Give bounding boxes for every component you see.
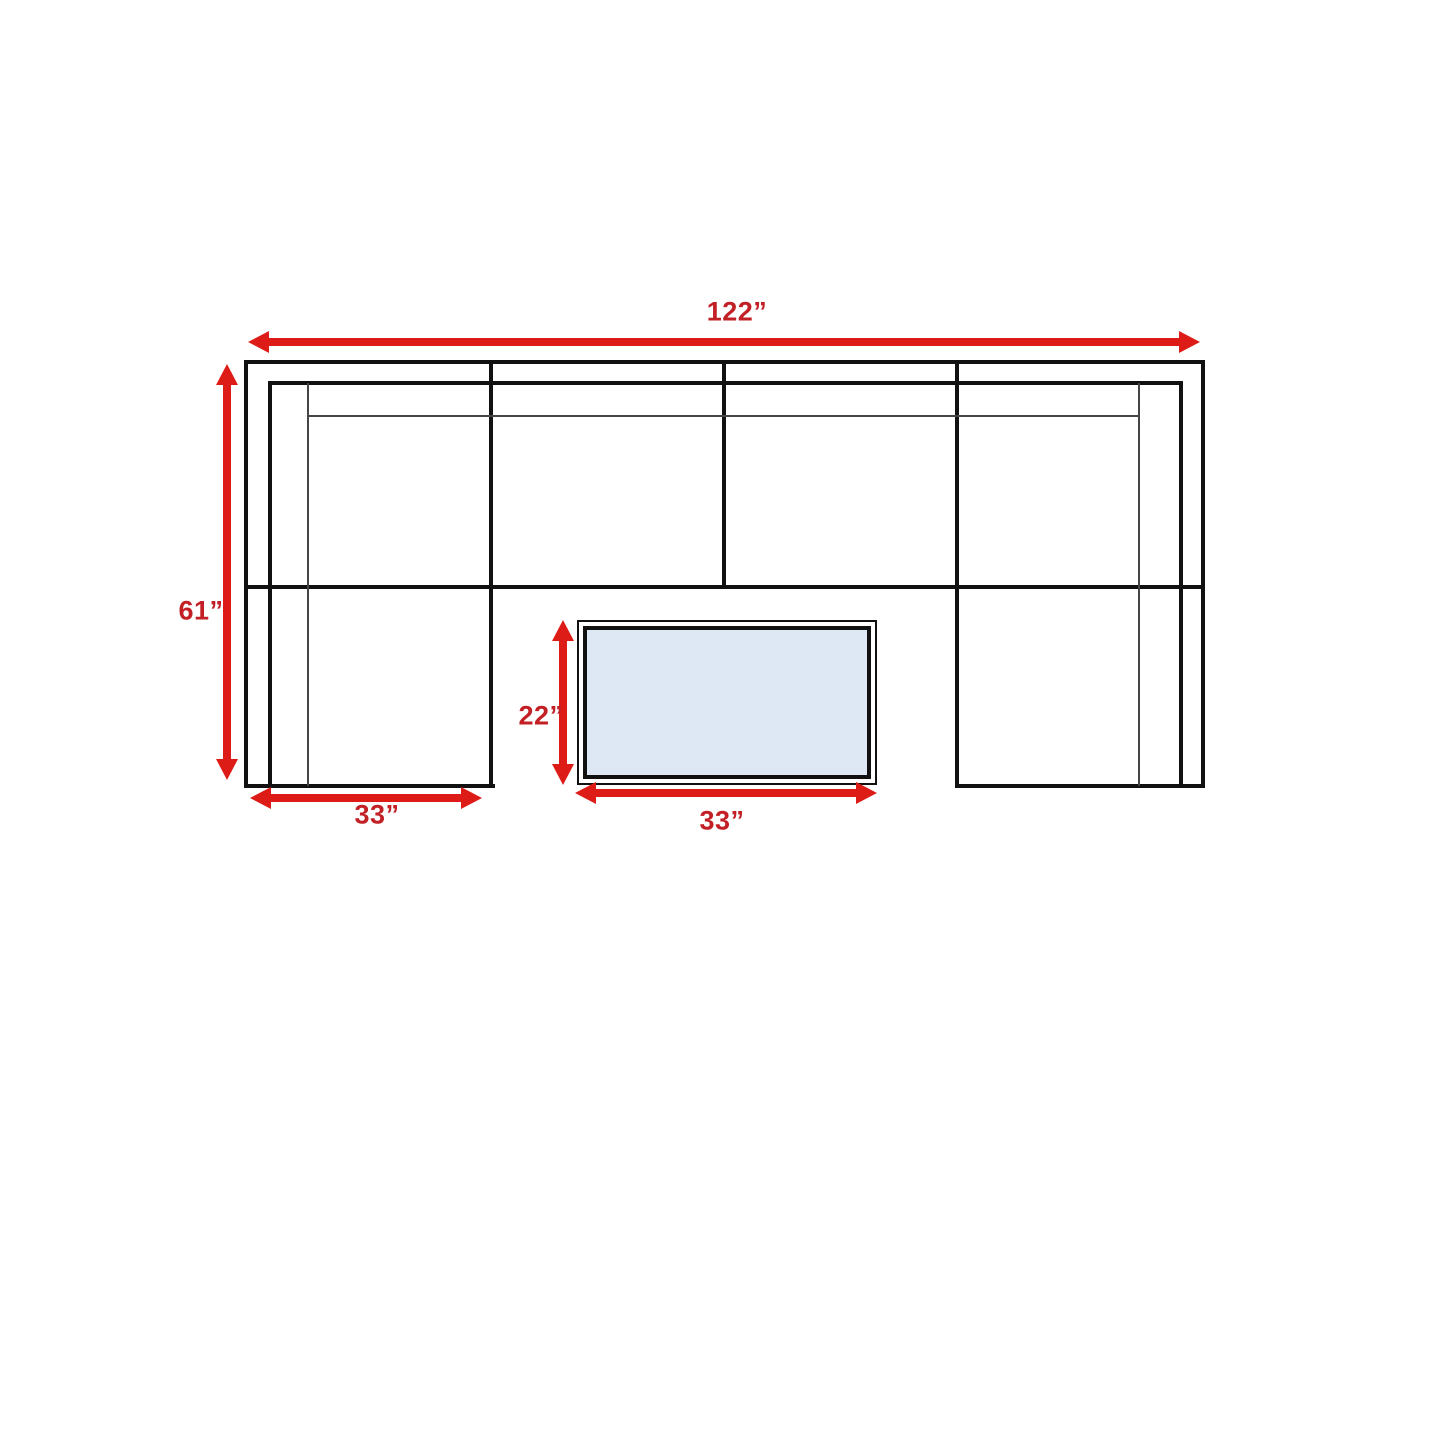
sofa-outer-left-edge [244, 360, 248, 788]
sofa-left-armrest-seam-line [307, 383, 309, 786]
dimension-diagram: 122” 61” 22” 33” 33” [0, 0, 1445, 1445]
sofa-right-chaise-bottom-edge [955, 784, 1205, 788]
sofa-divider-middle [722, 360, 726, 589]
sofa-backrest-inner-line [268, 381, 1183, 385]
coffee-table [577, 620, 877, 785]
sofa-outer-right-edge [1201, 360, 1205, 788]
sofa-right-armrest-inner-line [1179, 381, 1183, 788]
table-width-arrow [596, 789, 856, 797]
left-chaise-width-label: 33” [354, 802, 399, 829]
overall-width-arrow [269, 338, 1179, 346]
sofa-left-chaise-bottom-edge [244, 784, 495, 788]
sofa-divider-left [489, 360, 493, 788]
table-depth-label: 22” [518, 703, 563, 730]
coffee-table-glass-top [583, 626, 871, 779]
table-width-label: 33” [699, 808, 744, 835]
sofa-left-armrest-inner-line [268, 381, 272, 788]
overall-depth-label: 61” [178, 598, 223, 625]
sofa-divider-right [955, 360, 959, 788]
sofa-back-cushion-seam-line [307, 415, 1140, 417]
overall-depth-arrow [223, 385, 231, 759]
overall-width-label: 122” [707, 299, 768, 326]
sofa-right-armrest-seam-line [1138, 383, 1140, 786]
